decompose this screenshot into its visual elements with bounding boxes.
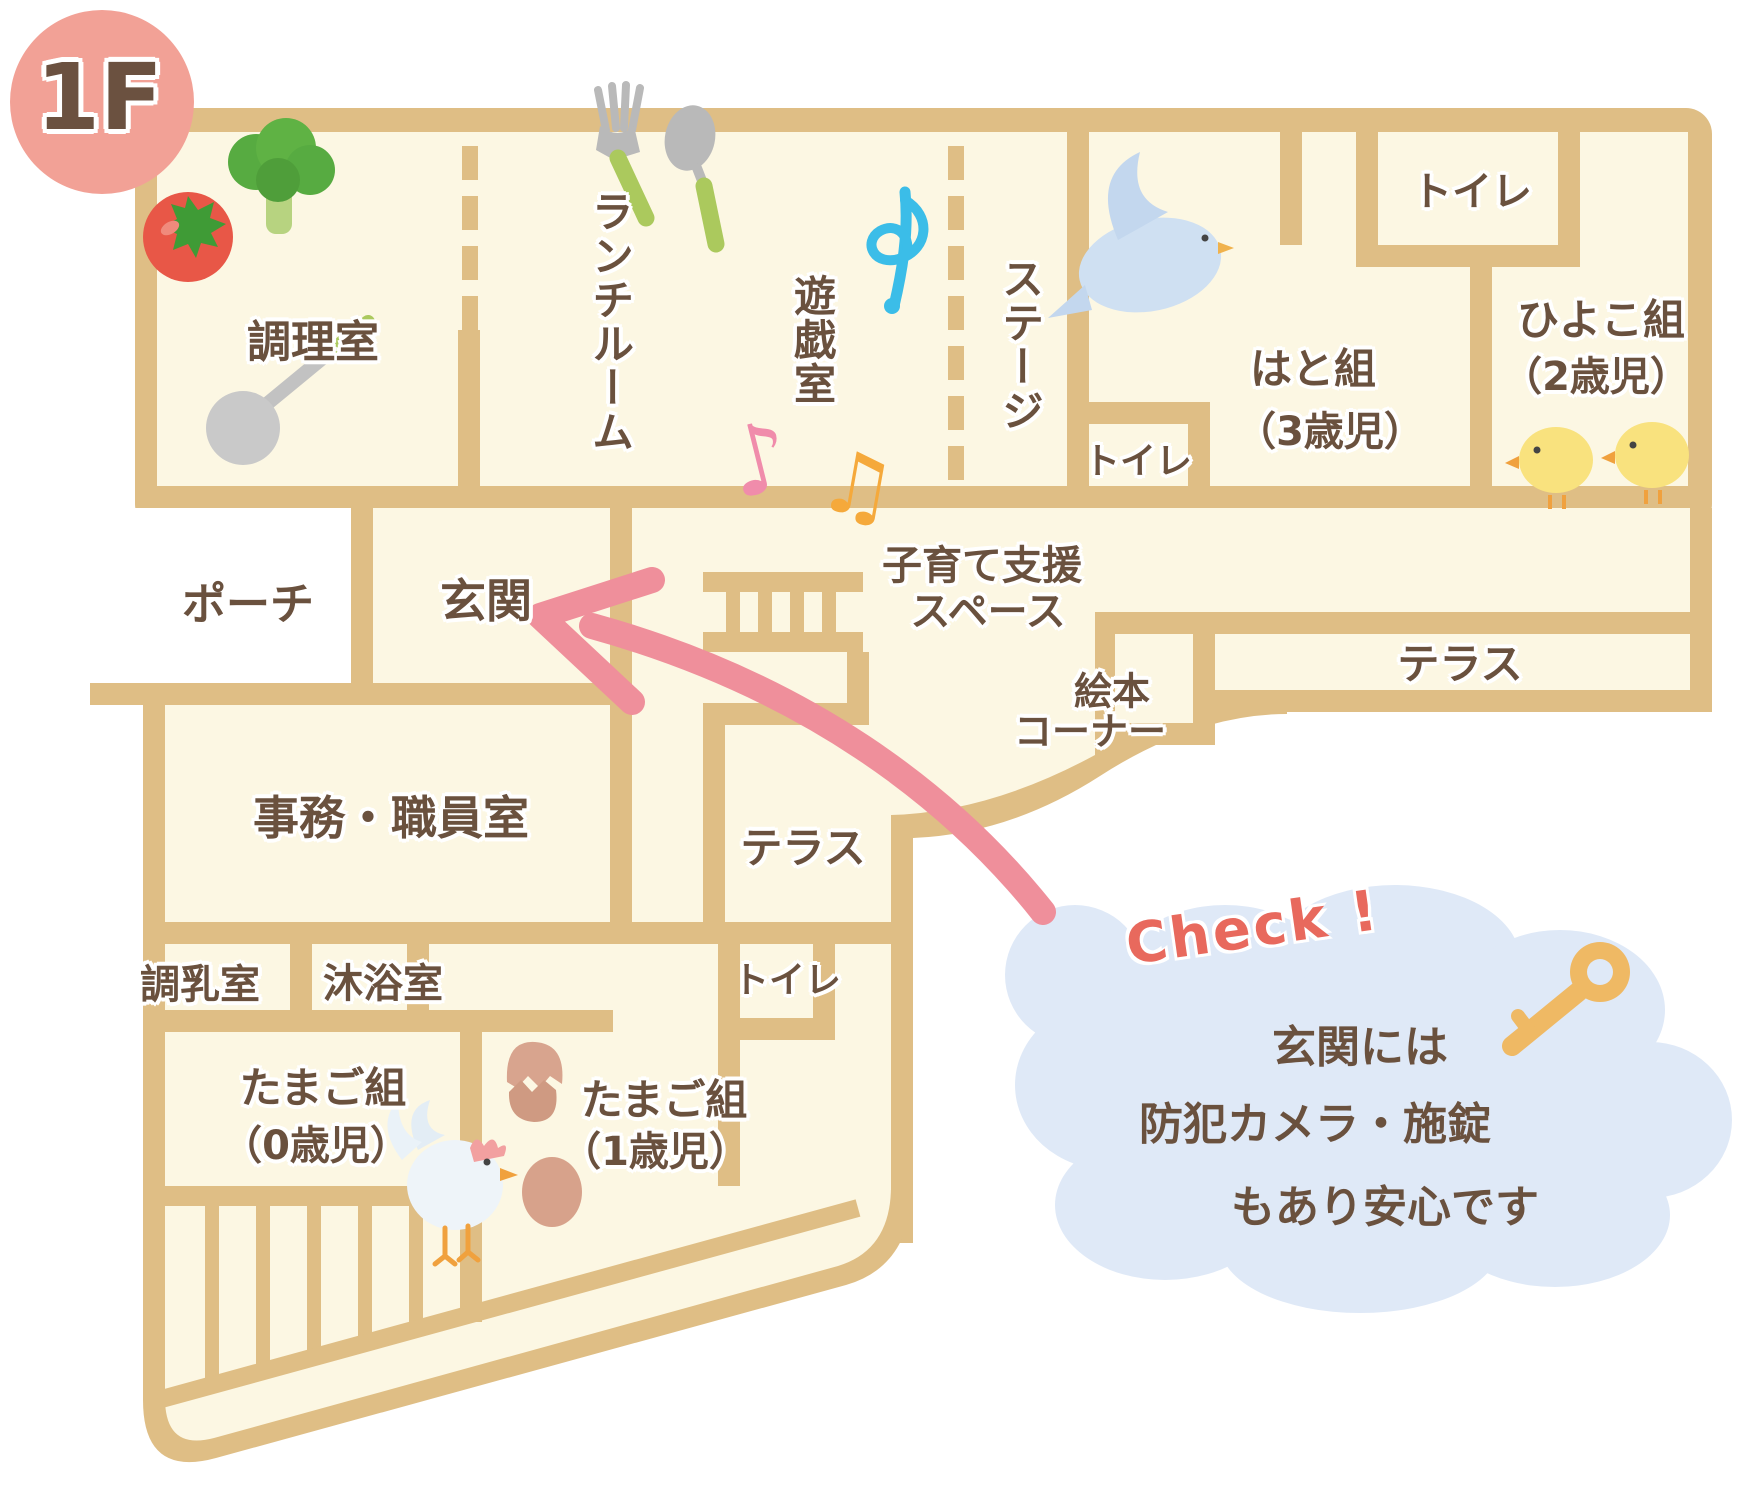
label-tamago1-age: （1歳児）: [561, 1119, 749, 1177]
label-hato-class-age: （3歳児）: [1236, 399, 1424, 457]
label-baby-bath-room: 沐浴室: [323, 951, 443, 1009]
label-toilet-center: トイレ: [1084, 432, 1192, 484]
label-porch: ポーチ: [182, 568, 314, 632]
label-picture-book-line2: コーナー: [1014, 701, 1166, 756]
room-tamago1-mid-area: [740, 1040, 835, 1190]
label-office: 事務・職員室: [253, 782, 529, 848]
floor-plan-drawing: ♪ ♫: [0, 0, 1752, 1489]
label-toilet-north: トイレ: [1412, 159, 1532, 217]
label-hiyoko-class-age: （2歳児）: [1502, 344, 1690, 402]
label-tamago0-age: （0歳児）: [222, 1113, 410, 1171]
label-play-room: 遊戯室: [782, 274, 843, 406]
callout-line1: 玄関には: [1272, 1011, 1448, 1075]
label-entrance: 玄関: [440, 565, 532, 631]
floor-badge-label: 1F: [36, 44, 163, 151]
label-lunch-room: ランチルーム: [580, 190, 641, 454]
label-toilet-south: トイレ: [733, 951, 841, 1003]
label-support-space-line2: スペース: [910, 579, 1065, 637]
label-terrace-east: テラス: [1397, 631, 1522, 692]
label-kitchen: 調理室: [247, 306, 379, 370]
label-hiyoko-class: ひよこ組: [1517, 287, 1685, 348]
label-milk-prep-room: 調乳室: [140, 952, 260, 1010]
callout-line3: もあり安心です: [1231, 1171, 1539, 1235]
label-terrace-center: テラス: [740, 815, 865, 876]
label-tamago0: たまご組: [240, 1055, 407, 1116]
callout-line2: 防犯カメラ・施錠: [1139, 1088, 1491, 1152]
room-tamago1-upper-right-area: [835, 944, 891, 1190]
label-stage: ステージ: [990, 257, 1051, 433]
floor-plan-1f: ♪ ♫: [0, 0, 1752, 1489]
label-hato-class: はと組: [1250, 336, 1376, 397]
floor-badge: 1F: [10, 10, 194, 194]
tomato-icon: [143, 192, 233, 282]
